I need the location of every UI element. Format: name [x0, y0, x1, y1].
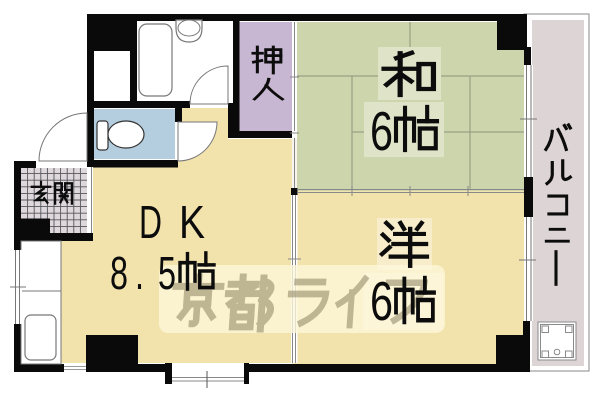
svg-text:.: .: [135, 247, 144, 299]
svg-text:6: 6: [370, 100, 393, 162]
svg-text:6: 6: [370, 270, 393, 332]
svg-text:K: K: [179, 196, 205, 248]
svg-text:8: 8: [110, 247, 128, 299]
svg-text:D: D: [139, 196, 162, 248]
svg-text:5: 5: [158, 247, 176, 299]
